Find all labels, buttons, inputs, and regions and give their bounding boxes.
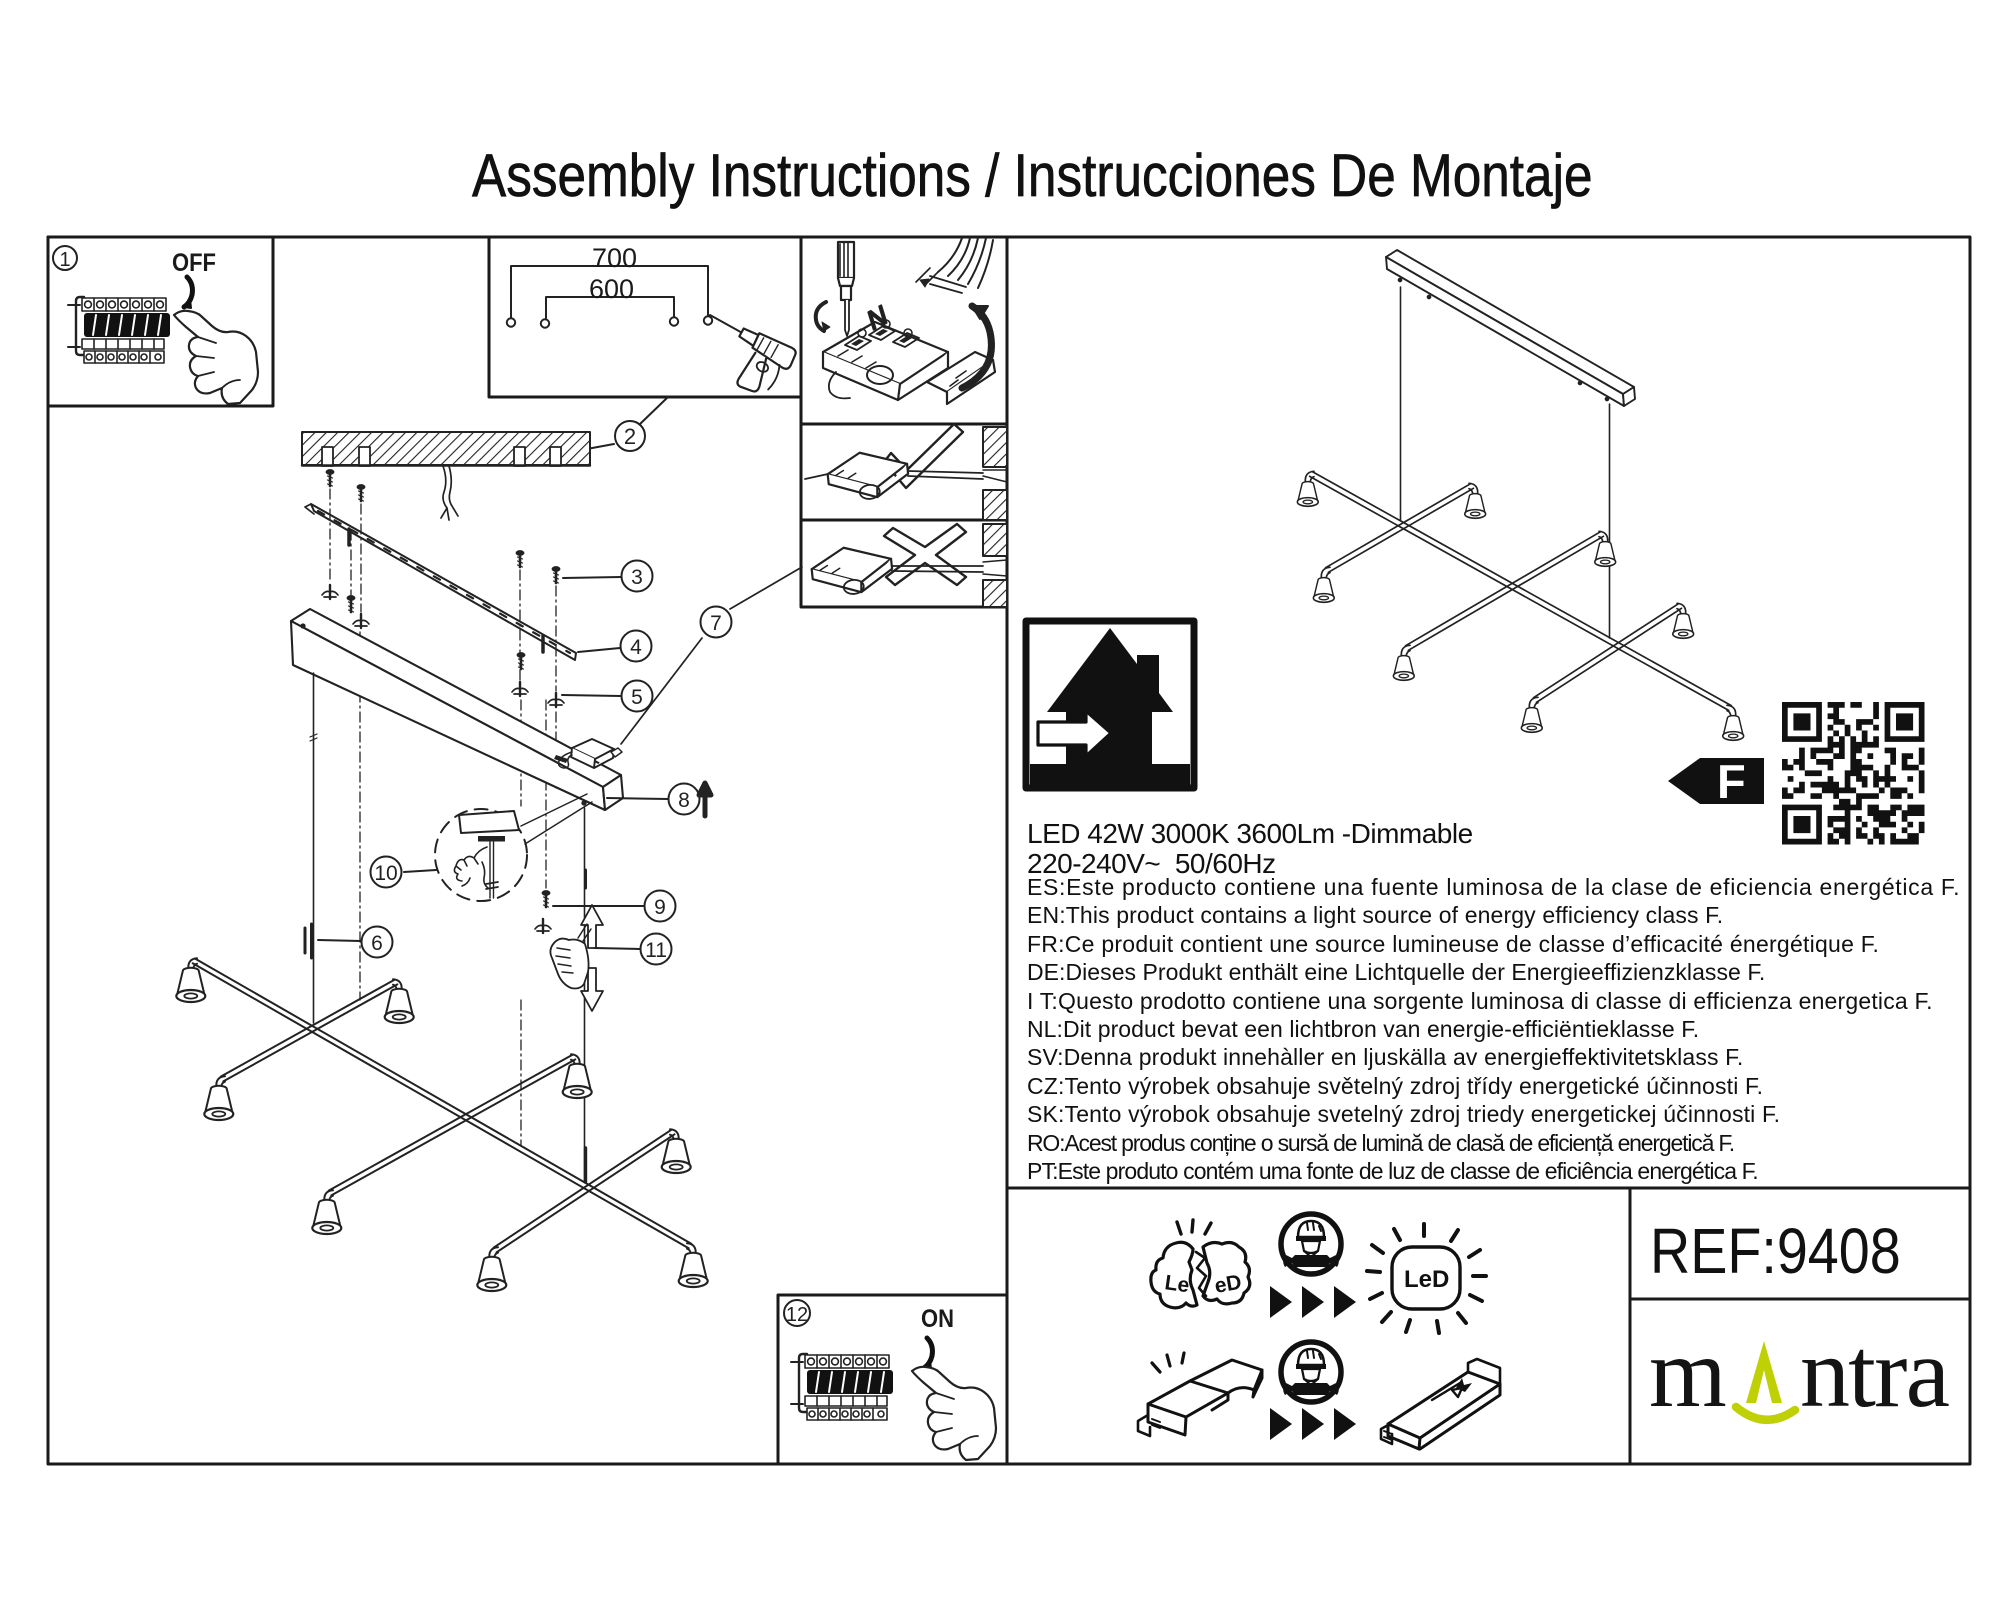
svg-text:11: 11 xyxy=(645,939,667,962)
svg-text:10: 10 xyxy=(374,862,397,885)
svg-text:6: 6 xyxy=(371,932,383,955)
svg-text:ON: ON xyxy=(921,1305,954,1333)
svg-text:ntra: ntra xyxy=(1800,1317,1950,1428)
svg-text:1: 1 xyxy=(59,249,70,271)
svg-text:9: 9 xyxy=(654,896,666,919)
svg-text:2: 2 xyxy=(624,424,636,449)
svg-text:8: 8 xyxy=(678,789,690,812)
svg-text:F: F xyxy=(1717,755,1746,808)
svg-text:5: 5 xyxy=(631,686,643,709)
svg-text:LeD: LeD xyxy=(1404,1266,1449,1293)
svg-text:3: 3 xyxy=(631,566,643,589)
svg-text:700: 700 xyxy=(592,243,637,273)
svg-text:m: m xyxy=(1649,1317,1727,1428)
svg-text:7: 7 xyxy=(710,612,722,635)
svg-text:4: 4 xyxy=(630,636,642,659)
svg-text:eD: eD xyxy=(1213,1271,1243,1298)
svg-text:600: 600 xyxy=(589,274,634,304)
svg-text:Le: Le xyxy=(1163,1271,1190,1297)
svg-text:OFF: OFF xyxy=(172,249,216,277)
svg-text:12: 12 xyxy=(786,1304,808,1326)
